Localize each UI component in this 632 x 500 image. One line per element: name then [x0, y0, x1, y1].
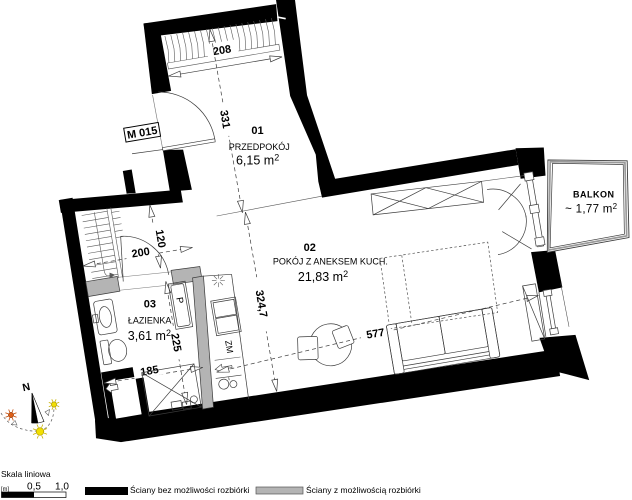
svg-text:0,5: 0,5: [27, 482, 41, 493]
svg-text:Ściany bez możliwości rozbiórk: Ściany bez możliwości rozbiórki: [130, 484, 250, 495]
svg-text:BALKON: BALKON: [573, 189, 615, 199]
svg-text:01: 01: [251, 125, 263, 137]
svg-text:P: P: [173, 296, 185, 304]
svg-text:1,0: 1,0: [55, 482, 69, 493]
svg-text:02: 02: [304, 242, 316, 254]
svg-text:Skala liniowa: Skala liniowa: [1, 469, 51, 479]
svg-text:3,61 m2: 3,61 m2: [128, 328, 171, 343]
svg-text:POKÓJ Z ANEKSEM KUCH.: POKÓJ Z ANEKSEM KUCH.: [273, 257, 388, 267]
svg-text:03: 03: [144, 298, 156, 310]
svg-text:~ 1,77 m2: ~ 1,77 m2: [565, 202, 617, 216]
svg-text:N: N: [21, 381, 31, 394]
svg-text:ŁAZIENKA: ŁAZIENKA: [128, 316, 172, 326]
svg-text:Ściany z możliwością rozbiórki: Ściany z możliwością rozbiórki: [306, 484, 421, 495]
svg-text:ZM: ZM: [223, 340, 235, 354]
svg-text:PRZEDPOKÓJ: PRZEDPOKÓJ: [229, 142, 290, 152]
svg-text:6,15 m2: 6,15 m2: [236, 152, 279, 167]
svg-text:577: 577: [366, 327, 386, 342]
svg-text:200: 200: [131, 246, 151, 261]
svg-text:21,83 m2: 21,83 m2: [298, 269, 348, 284]
